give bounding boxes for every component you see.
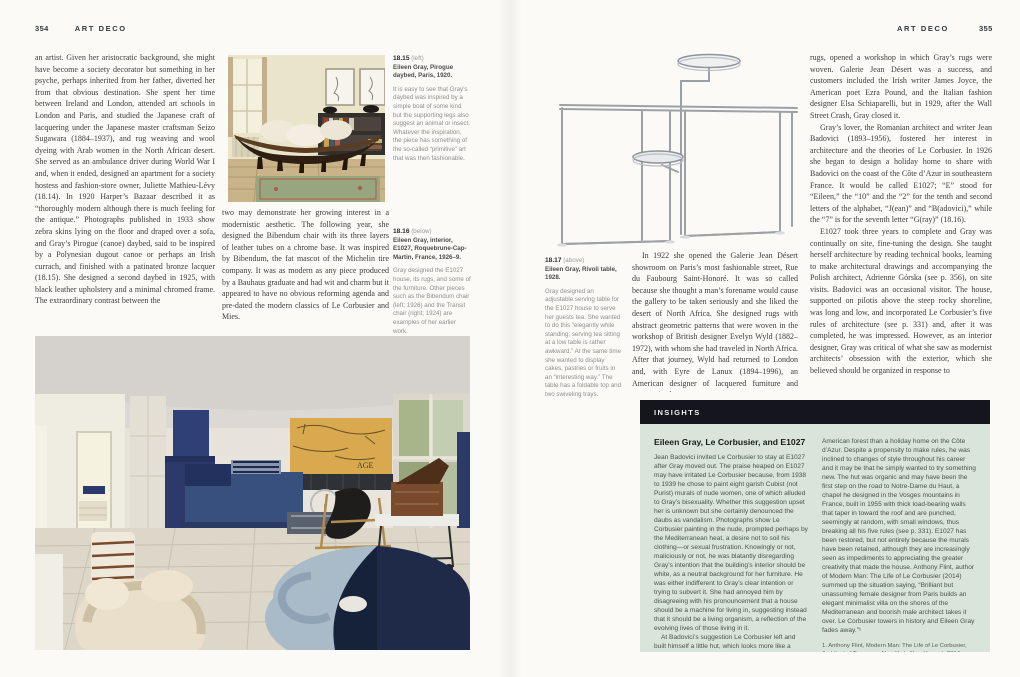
- caption-body: Gray designed an adjustable serving tabl…: [545, 288, 623, 400]
- page-number-right: 355: [979, 24, 993, 33]
- insights-column-2: American forest than a holiday home on t…: [822, 437, 976, 642]
- body-text-column-2: two may demonstrate her growing interest…: [222, 207, 389, 332]
- caption-title: Eileen Gray, interior, E1027, Roquebrune…: [393, 237, 471, 263]
- paragraph: At Badovici’s suggestion Le Corbusier le…: [654, 633, 808, 652]
- running-head-right: ART DECO355: [897, 24, 993, 33]
- caption-number: 18.17: [545, 257, 562, 264]
- paragraph: rugs, opened a workshop in which Gray’s …: [810, 52, 992, 122]
- insights-column-1: Eileen Gray, Le Corbusier, and E1027 Jea…: [654, 437, 808, 642]
- e1027-interior-photo: AGE: [35, 336, 470, 650]
- svg-text:AGE: AGE: [357, 461, 374, 470]
- paragraph: In 1922 she opened the Galerie Jean Dése…: [632, 250, 798, 392]
- paragraph: Jean Badovici invited Le Corbusier to st…: [654, 453, 808, 633]
- caption-placement: (left): [411, 55, 423, 62]
- caption-body: It is easy to see that Gray’s daybed was…: [393, 86, 471, 163]
- rivoli-table-photo: [552, 26, 802, 252]
- page-number-left: 354: [35, 24, 49, 33]
- insights-body: Eileen Gray, Le Corbusier, and E1027 Jea…: [640, 424, 990, 652]
- section-title: ART DECO: [897, 24, 949, 33]
- book-spread: 354ART DECO ART DECO355 an artist. Given…: [0, 0, 1020, 677]
- insights-header: INSIGHTS: [640, 400, 990, 424]
- striped-side-table: [91, 532, 135, 584]
- body-text-column-3: In 1922 she opened the Galerie Jean Dése…: [632, 250, 798, 392]
- caption-number: 18.16: [393, 228, 410, 235]
- insights-footnote: 1. Anthony Flint, Modern Man: The Life o…: [822, 643, 976, 652]
- section-title: ART DECO: [75, 24, 127, 33]
- caption-title: Eileen Gray, Pirogue daybed, Paris, 1920…: [393, 64, 471, 81]
- paragraph: E1027 took three years to complete and G…: [810, 226, 992, 377]
- pirogue-daybed-photo: [228, 55, 385, 202]
- caption-placement: (above): [563, 257, 584, 264]
- caption-body: Gray designed the E1027 house, its rugs,…: [393, 267, 471, 336]
- bibendum-chair: [75, 570, 206, 650]
- page-gutter: [498, 0, 522, 677]
- figure-caption-18-15: 18.15 (left) Eileen Gray, Pirogue daybed…: [393, 55, 471, 163]
- caption-number: 18.15: [393, 55, 410, 62]
- running-head-left: 354ART DECO: [35, 24, 127, 33]
- insights-title: Eileen Gray, Le Corbusier, and E1027: [654, 437, 808, 447]
- caption-placement: (below): [411, 228, 431, 235]
- paragraph: Gray’s lover, the Romanian architect and…: [810, 122, 992, 226]
- figure-caption-18-17: 18.17 (above) Eileen Gray, Rivoli table,…: [545, 257, 623, 400]
- figure-caption-18-16: 18.16 (below) Eileen Gray, interior, E10…: [393, 228, 471, 336]
- insights-box: INSIGHTS Eileen Gray, Le Corbusier, and …: [640, 400, 990, 652]
- paragraph: American forest than a holiday home on t…: [822, 437, 976, 635]
- body-text-column-4: rugs, opened a workshop in which Gray’s …: [810, 52, 992, 394]
- caption-title: Eileen Gray, Rivoli table, 1928.: [545, 266, 623, 283]
- body-text-column-1: an artist. Given her aristocratic backgr…: [35, 52, 215, 336]
